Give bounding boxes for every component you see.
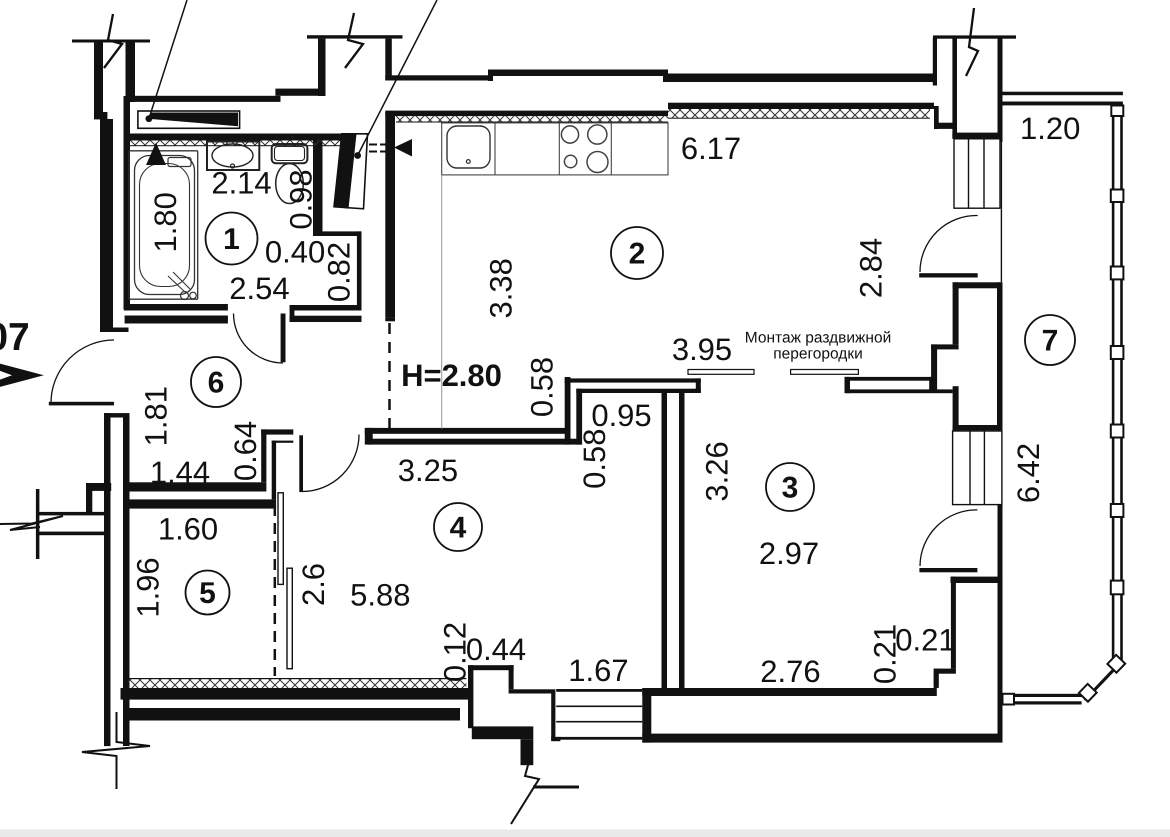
svg-text:7: 7 — [1042, 325, 1059, 358]
svg-text:6.17: 6.17 — [681, 131, 741, 166]
svg-text:3.26: 3.26 — [699, 441, 734, 501]
svg-text:2.54: 2.54 — [229, 271, 289, 306]
svg-text:0.98: 0.98 — [283, 169, 318, 229]
svg-text:0.58: 0.58 — [577, 429, 612, 489]
svg-text:0.82: 0.82 — [321, 242, 356, 302]
svg-text:перегородки: перегородки — [773, 345, 863, 362]
svg-text:1.44: 1.44 — [150, 455, 210, 490]
svg-text:1.81: 1.81 — [138, 386, 173, 446]
svg-text:4: 4 — [450, 512, 467, 545]
svg-text:1.20: 1.20 — [1020, 111, 1080, 146]
svg-text:07: 07 — [0, 316, 30, 359]
svg-text:5: 5 — [199, 577, 216, 610]
svg-text:1: 1 — [223, 223, 240, 256]
svg-text:6: 6 — [208, 367, 225, 400]
svg-text:2.76: 2.76 — [760, 654, 820, 689]
svg-text:2.84: 2.84 — [854, 238, 889, 298]
svg-text:3.25: 3.25 — [398, 453, 458, 488]
svg-text:0.95: 0.95 — [591, 398, 651, 433]
svg-text:1.96: 1.96 — [131, 557, 166, 617]
svg-text:0.44: 0.44 — [466, 632, 526, 667]
svg-text:0.64: 0.64 — [228, 421, 263, 481]
svg-text:0.21: 0.21 — [895, 622, 955, 657]
svg-text:3.38: 3.38 — [483, 258, 518, 318]
svg-text:2.97: 2.97 — [759, 536, 819, 571]
svg-text:Монтаж раздвижной: Монтаж раздвижной — [745, 329, 891, 346]
svg-text:3: 3 — [782, 472, 799, 505]
svg-text:2: 2 — [629, 238, 646, 271]
svg-text:1.80: 1.80 — [148, 192, 183, 252]
svg-text:1.67: 1.67 — [568, 653, 628, 688]
svg-text:0.58: 0.58 — [524, 357, 559, 417]
svg-text:0.40: 0.40 — [265, 234, 325, 269]
svg-text:5.88: 5.88 — [350, 577, 410, 612]
svg-text:3.95: 3.95 — [672, 332, 732, 367]
svg-text:H=2.80: H=2.80 — [401, 358, 502, 393]
svg-text:6.42: 6.42 — [1011, 443, 1046, 503]
svg-text:1.60: 1.60 — [158, 511, 218, 546]
svg-text:2.6: 2.6 — [296, 563, 331, 606]
svg-text:2.14: 2.14 — [211, 165, 271, 200]
